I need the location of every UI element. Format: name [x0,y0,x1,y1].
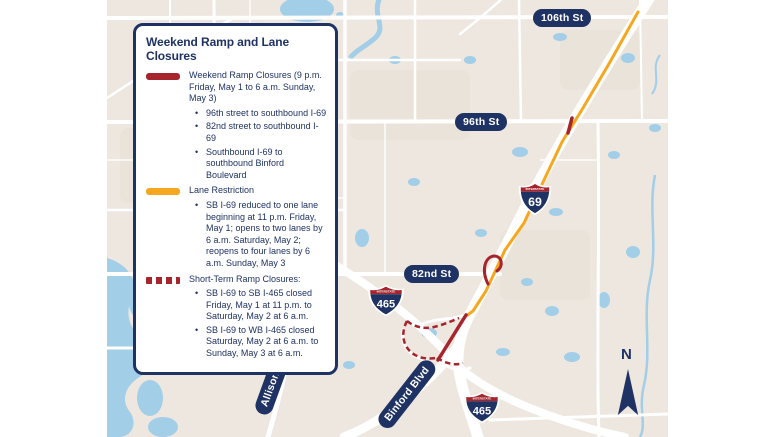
bullet-icon [195,325,206,360]
interstate-465-shield-south: INTERSTATE 465 [463,391,501,425]
bullet-text: SB I-69 to SB I-465 closed Friday, May 1… [206,288,327,323]
shield-header-text: INTERSTATE [473,397,492,401]
dashed-red-line-swatch [146,277,180,284]
bullet-icon [195,200,206,270]
bullet-icon [195,288,206,323]
list-item: SB I-69 to WB I-465 closed Saturday, May… [195,325,327,360]
legend-bullet-list: SB I-69 reduced to one lane beginning at… [195,200,327,270]
legend-bullet-list: 96th street to southbound I-69 82nd stre… [195,108,327,182]
bullet-text: SB I-69 reduced to one lane beginning at… [206,200,327,270]
list-item: 96th street to southbound I-69 [195,108,327,120]
solid-orange-line-swatch [146,188,180,195]
street-label-106th: 106th St [533,9,591,27]
legend-panel: Weekend Ramp and Lane Closures Weekend R… [133,23,338,375]
list-item: Southbound I-69 to southbound Binford Bo… [195,147,327,182]
bullet-icon [195,108,206,120]
highway-roads [318,0,652,437]
shield-number-text: 69 [528,195,542,209]
legend-bullet-list: SB I-69 to SB I-465 closed Friday, May 1… [195,288,327,360]
shield-number-text: 465 [377,298,395,310]
shield-header-text: INTERSTATE [526,187,545,191]
closure-map-graphic: 106th St 96th St 82nd St Allisonville Rd… [0,0,777,437]
legend-item-lane-restriction: Lane Restriction [146,185,327,197]
interstate-69-shield: INTERSTATE 69 [518,181,552,217]
street-label-82nd: 82nd St [404,265,459,283]
interstate-465-shield-west: INTERSTATE 465 [367,284,405,318]
north-label: N [621,346,632,363]
street-label-96th: 96th St [455,113,507,131]
list-item: SB I-69 reduced to one lane beginning at… [195,200,327,270]
legend-item-label: Weekend Ramp Closures (9 p.m. Friday, Ma… [189,70,327,105]
bullet-text: Southbound I-69 to southbound Binford Bo… [206,147,327,182]
bullet-icon [195,147,206,182]
solid-red-line-swatch [146,73,180,80]
bullet-text: 82nd street to southbound I-69 [206,121,327,144]
legend-item-label: Lane Restriction [189,185,327,197]
legend-title: Weekend Ramp and Lane Closures [146,35,327,63]
list-item: 82nd street to southbound I-69 [195,121,327,144]
list-item: SB I-69 to SB I-465 closed Friday, May 1… [195,288,327,323]
shield-header-text: INTERSTATE [377,290,396,294]
north-arrow-icon [616,368,640,423]
legend-item-short-term-ramp-closures: Short-Term Ramp Closures: [146,274,327,286]
bullet-text: SB I-69 to WB I-465 closed Saturday, May… [206,325,327,360]
bullet-icon [195,121,206,144]
bullet-text: 96th street to southbound I-69 [206,108,327,120]
legend-item-weekend-ramp-closures: Weekend Ramp Closures (9 p.m. Friday, Ma… [146,70,327,105]
legend-item-label: Short-Term Ramp Closures: [189,274,327,286]
shield-number-text: 465 [473,405,491,417]
